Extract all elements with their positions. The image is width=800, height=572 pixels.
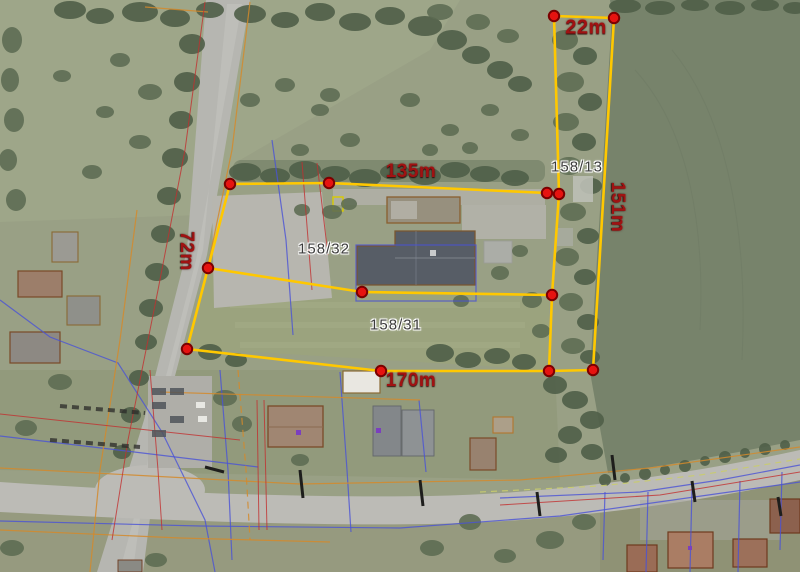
vertex-marker[interactable] [588,365,598,375]
vertex-marker[interactable] [203,263,213,273]
vertex-marker[interactable] [544,366,554,376]
parcel-label-158-32: 158/32 [298,241,350,258]
measure-label-north: 135m [386,161,437,183]
vertex-marker[interactable] [554,189,564,199]
aerial-photo [0,0,800,572]
garden-pad [484,241,512,263]
vertex-marker[interactable] [182,344,192,354]
vertex-marker[interactable] [376,366,386,376]
measure-label-east: 151m [606,182,628,233]
map-viewport[interactable]: 22m 135m 151m 72m 170m 158/13 158/32 158… [0,0,800,572]
vertex-marker[interactable] [324,178,334,188]
vertex-marker[interactable] [225,179,235,189]
vertex-marker[interactable] [542,188,552,198]
measure-label-south: 170m [386,370,437,392]
parcel-label-158-13: 158/13 [551,159,603,176]
measure-label-strip-top: 22m [565,17,607,40]
shed-3 [493,417,513,433]
house-bottom-2 [470,438,496,470]
vertex-marker[interactable] [609,13,619,23]
vertex-marker[interactable] [357,287,367,297]
vertex-marker[interactable] [547,290,557,300]
parcel-label-158-31: 158/31 [370,317,422,334]
shed-2 [402,410,434,456]
measure-label-west: 72m [175,231,197,271]
vertex-marker[interactable] [549,11,559,21]
white-building [343,371,380,393]
